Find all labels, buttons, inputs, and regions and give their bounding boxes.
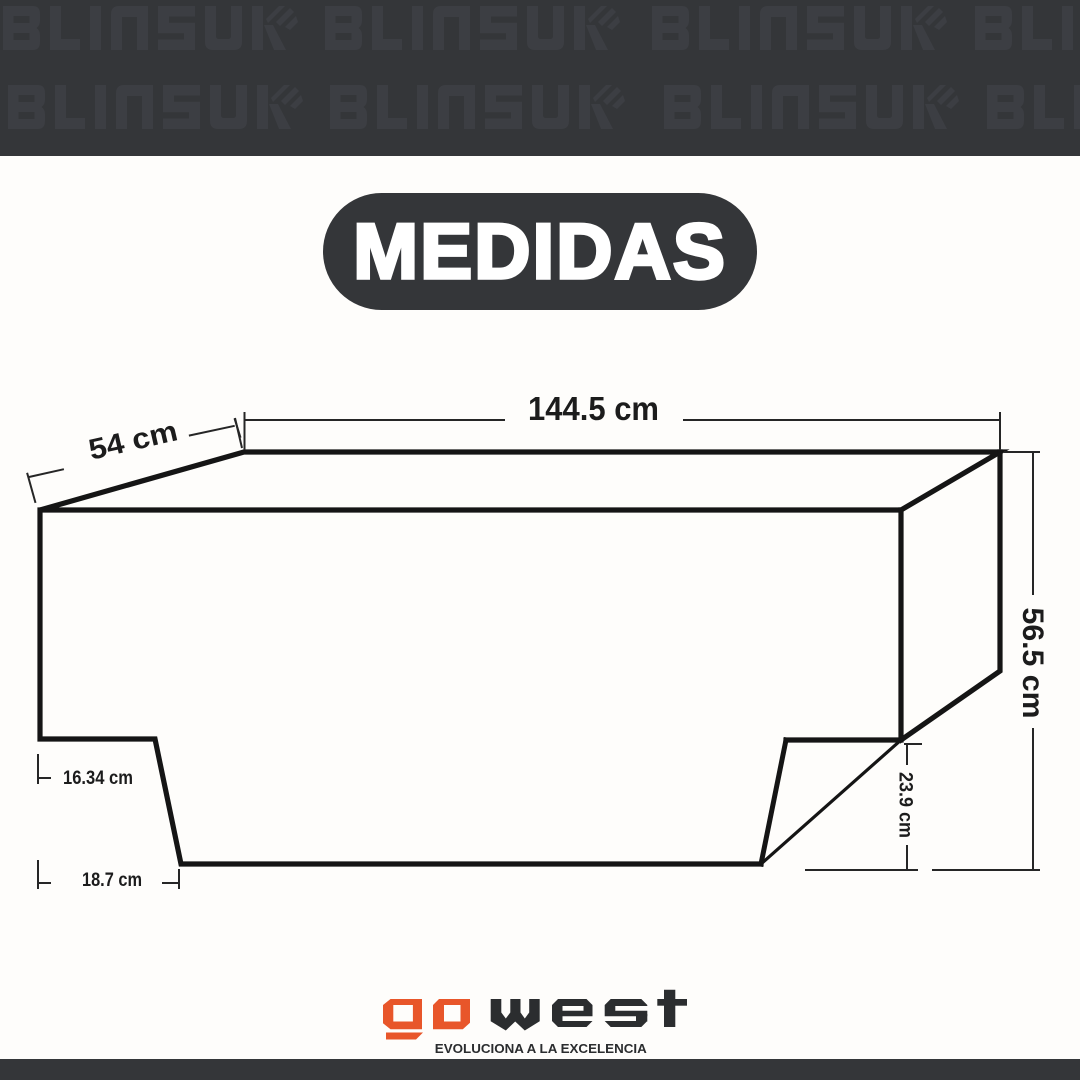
svg-text:EVOLUCIONA A LA EXCELENCIA: EVOLUCIONA A LA EXCELENCIA [435,1042,647,1056]
